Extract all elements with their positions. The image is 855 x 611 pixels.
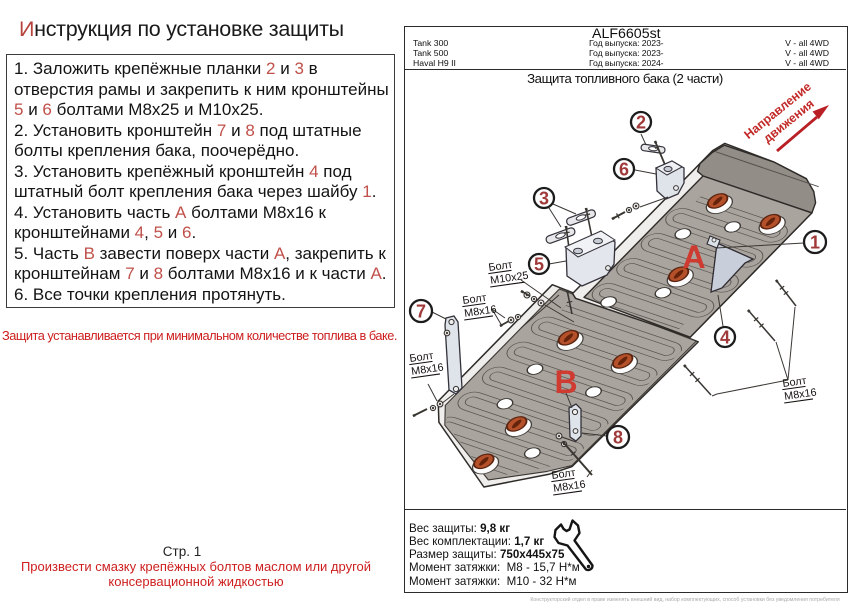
svg-text:1: 1 [810, 232, 820, 252]
svg-text:А: А [682, 239, 705, 275]
svg-text:4: 4 [720, 327, 730, 347]
svg-text:В: В [554, 364, 577, 400]
svg-text:8: 8 [613, 427, 623, 447]
svg-text:6: 6 [619, 159, 629, 179]
svg-text:3: 3 [539, 188, 549, 208]
svg-text:2: 2 [636, 112, 646, 132]
svg-text:7: 7 [416, 301, 426, 321]
svg-text:5: 5 [534, 254, 544, 274]
